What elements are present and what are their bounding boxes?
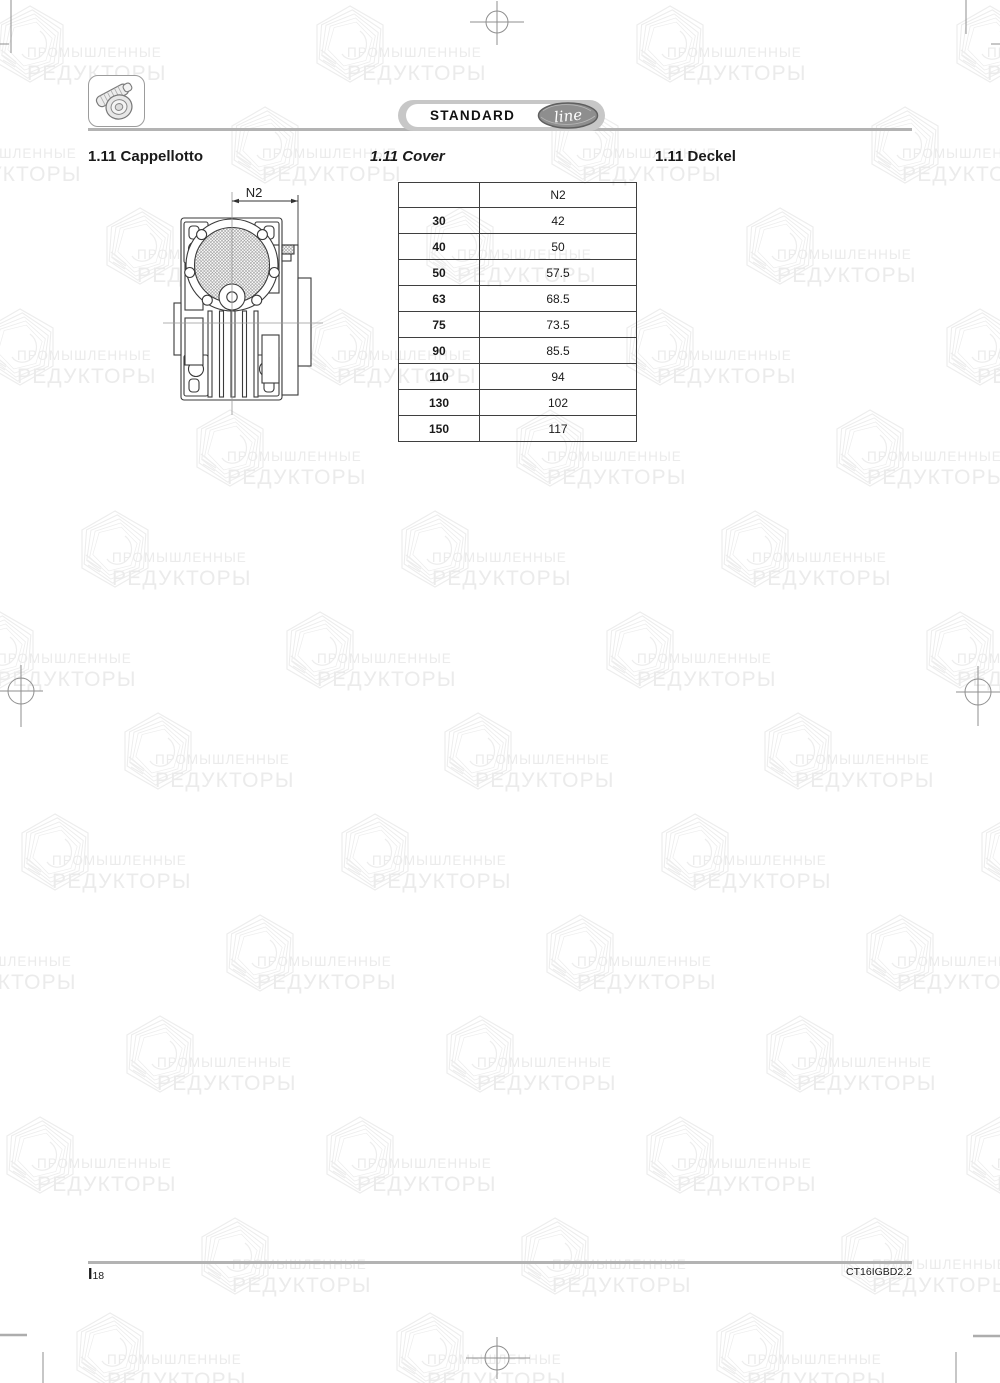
- svg-text:line: line: [553, 106, 583, 127]
- watermark: ПРОМЫШЛЕННЫЕРЕДУКТОРЫ: [655, 813, 955, 893]
- watermark: ПРОМЫШЛЕННЫЕРЕДУКТОРЫ: [940, 308, 1000, 388]
- size-cell: 150: [399, 416, 480, 442]
- n2-header-cell: N2: [480, 183, 637, 208]
- watermark: ПРОМЫШЛЕННЫЕРЕДУКТОРЫ: [395, 510, 695, 590]
- size-cell: 40: [399, 234, 480, 260]
- watermark: ПРОМЫШЛЕННЫЕРЕДУКТОРЫ: [630, 5, 930, 85]
- watermark: ПРОМЫШЛЕННЫЕРЕДУКТОРЫ: [950, 5, 1000, 85]
- n2-value-cell: 73.5: [480, 312, 637, 338]
- worm-gearbox-icon: [88, 75, 145, 127]
- worm-gearbox-drawing: [89, 76, 144, 126]
- n2-value-cell: 102: [480, 390, 637, 416]
- table-row: 9085.5: [399, 338, 637, 364]
- watermark: ПРОМЫШЛЕННЫЕРЕДУКТОРЫ: [760, 1015, 1000, 1095]
- watermark: ПРОМЫШЛЕННЫЕРЕДУКТОРЫ: [280, 611, 580, 691]
- watermark: ПРОМЫШЛЕННЫЕРЕДУКТОРЫ: [75, 510, 375, 590]
- doc-code: CT16IGBD2.2: [846, 1266, 912, 1278]
- size-cell: 110: [399, 364, 480, 390]
- table-row: 7573.5: [399, 312, 637, 338]
- n2-value-cell: 117: [480, 416, 637, 442]
- size-cell: 75: [399, 312, 480, 338]
- size-cell: 50: [399, 260, 480, 286]
- watermark: ПРОМЫШЛЕННЫЕРЕДУКТОРЫ: [715, 510, 1000, 590]
- watermark: ПРОМЫШЛЕННЫЕРЕДУКТОРЫ: [335, 813, 635, 893]
- table-row: 3042: [399, 208, 637, 234]
- watermark: ПРОМЫШЛЕННЫЕРЕДУКТОРЫ: [830, 409, 1000, 489]
- watermark: ПРОМЫШЛЕННЫЕРЕДУКТОРЫ: [0, 914, 200, 994]
- watermark: ПРОМЫШЛЕННЫЕРЕДУКТОРЫ: [960, 1116, 1000, 1196]
- watermark: ПРОМЫШЛЕННЫЕРЕДУКТОРЫ: [0, 611, 260, 691]
- catalog-page: ПРОМЫШЛЕННЫЕРЕДУКТОРЫПРОМЫШЛЕННЫЕРЕДУКТО…: [0, 0, 1000, 1383]
- watermark: ПРОМЫШЛЕННЫЕРЕДУКТОРЫ: [70, 1312, 370, 1383]
- standard-line-badge: STANDARD line: [398, 100, 605, 131]
- size-cell: 63: [399, 286, 480, 312]
- watermark: ПРОМЫШЛЕННЫЕРЕДУКТОРЫ: [220, 914, 520, 994]
- watermark: ПРОМЫШЛЕННЫЕРЕДУКТОРЫ: [740, 207, 1000, 287]
- watermark: ПРОМЫШЛЕННЫЕРЕДУКТОРЫ: [310, 5, 610, 85]
- page-num: 18: [92, 1270, 104, 1282]
- table-row: 130102: [399, 390, 637, 416]
- n2-value-cell: 94: [480, 364, 637, 390]
- watermark: ПРОМЫШЛЕННЫЕРЕДУКТОРЫ: [515, 1217, 815, 1297]
- watermark: ПРОМЫШЛЕННЫЕРЕДУКТОРЫ: [120, 1015, 420, 1095]
- n2-table: N2 304240505057.56368.57573.59085.511094…: [398, 182, 637, 442]
- n2-value-cell: 57.5: [480, 260, 637, 286]
- dimension-label: N2: [246, 185, 263, 200]
- watermark: ПРОМЫШЛЕННЫЕРЕДУКТОРЫ: [15, 813, 315, 893]
- watermark: ПРОМЫШЛЕННЫЕРЕДУКТОРЫ: [835, 1217, 1000, 1297]
- page-number: I18: [88, 1266, 104, 1284]
- n2-value-cell: 85.5: [480, 338, 637, 364]
- table-row: 5057.5: [399, 260, 637, 286]
- n2-value-cell: 50: [480, 234, 637, 260]
- table-row: 11094: [399, 364, 637, 390]
- watermark: ПРОМЫШЛЕННЫЕРЕДУКТОРЫ: [620, 308, 920, 388]
- watermark: ПРОМЫШЛЕННЫЕРЕДУКТОРЫ: [600, 611, 900, 691]
- watermark: ПРОМЫШЛЕННЫЕРЕДУКТОРЫ: [118, 712, 418, 792]
- badge-label: STANDARD: [430, 108, 515, 123]
- watermark: ПРОМЫШЛЕННЫЕРЕДУКТОРЫ: [440, 1015, 740, 1095]
- watermark: ПРОМЫШЛЕННЫЕРЕДУКТОРЫ: [758, 712, 1000, 792]
- size-header-cell: [399, 183, 480, 208]
- watermark: ПРОМЫШЛЕННЫЕРЕДУКТОРЫ: [320, 1116, 620, 1196]
- footer-rule: [88, 1261, 912, 1264]
- watermark: ПРОМЫШЛЕННЫЕРЕДУКТОРЫ: [865, 106, 1000, 186]
- size-cell: 90: [399, 338, 480, 364]
- watermark: ПРОМЫШЛЕННЫЕРЕДУКТОРЫ: [0, 5, 290, 85]
- section-title-english: 1.11 Cover: [370, 148, 445, 165]
- table-row: 6368.5: [399, 286, 637, 312]
- table-row: 4050: [399, 234, 637, 260]
- watermark: ПРОМЫШЛЕННЫЕРЕДУКТОРЫ: [710, 1312, 1000, 1383]
- watermark: ПРОМЫШЛЕННЫЕРЕДУКТОРЫ: [860, 914, 1000, 994]
- watermark: ПРОМЫШЛЕННЫЕРЕДУКТОРЫ: [390, 1312, 690, 1383]
- watermark: ПРОМЫШЛЕННЫЕРЕДУКТОРЫ: [195, 1217, 495, 1297]
- section-title-italian: 1.11 Cappellotto: [88, 148, 203, 165]
- size-cell: 30: [399, 208, 480, 234]
- table-row: 150117: [399, 416, 637, 442]
- watermark: ПРОМЫШЛЕННЫЕРЕДУКТОРЫ: [975, 813, 1000, 893]
- line-logo: line: [537, 102, 599, 129]
- watermark: ПРОМЫШЛЕННЫЕРЕДУКТОРЫ: [438, 712, 738, 792]
- n2-table-body: 304240505057.56368.57573.59085.511094130…: [399, 208, 637, 442]
- n2-value-cell: 42: [480, 208, 637, 234]
- section-title-german: 1.11 Deckel: [655, 148, 736, 165]
- watermark: ПРОМЫШЛЕННЫЕРЕДУКТОРЫ: [0, 1116, 300, 1196]
- technical-drawing: N2: [158, 183, 358, 418]
- watermark: ПРОМЫШЛЕННЫЕРЕДУКТОРЫ: [540, 914, 840, 994]
- table-header-row: N2: [399, 183, 637, 208]
- watermark: ПРОМЫШЛЕННЫЕРЕДУКТОРЫ: [640, 1116, 940, 1196]
- n2-value-cell: 68.5: [480, 286, 637, 312]
- size-cell: 130: [399, 390, 480, 416]
- watermark: ПРОМЫШЛЕННЫЕРЕДУКТОРЫ: [920, 611, 1000, 691]
